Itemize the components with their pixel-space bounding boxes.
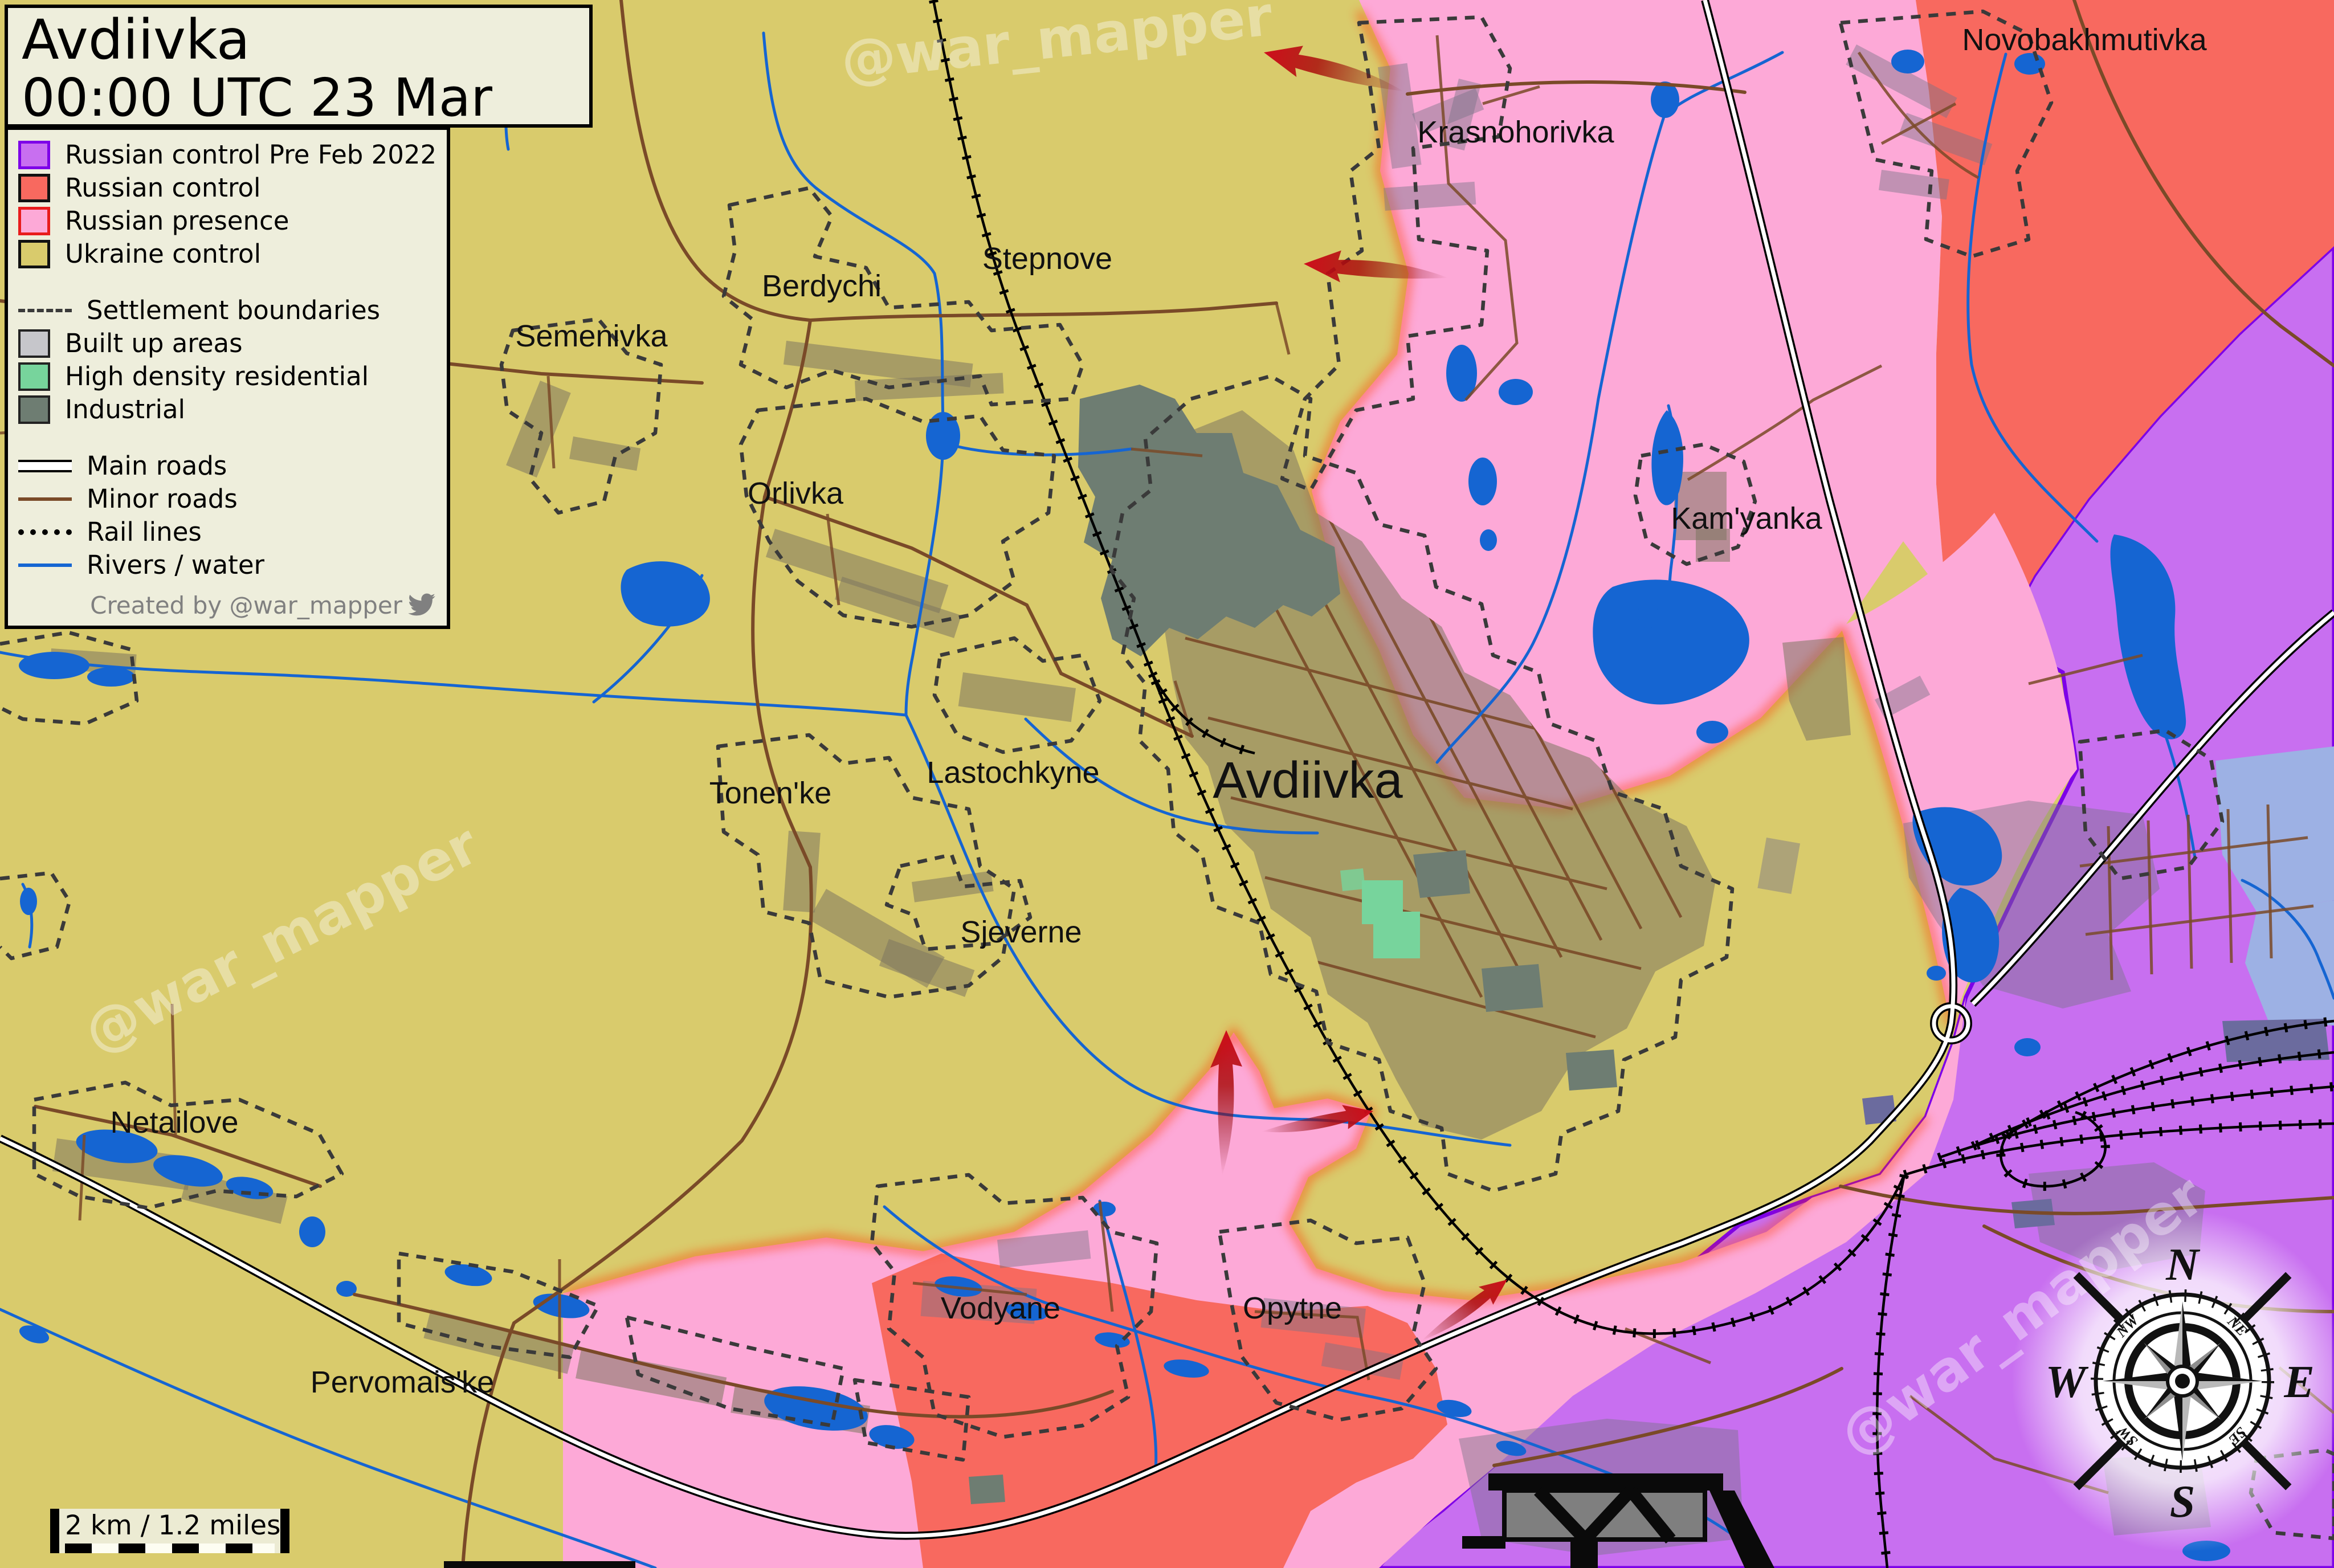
legend-label: Russian presence — [65, 206, 289, 236]
legend-row-prefeb: Russian control Pre Feb 2022 — [18, 138, 436, 171]
label-orlivka: Orlivka — [748, 476, 844, 511]
label-lastochkyne: Lastochkyne — [927, 756, 1099, 790]
label-krasnohorivka: Krasnohorivka — [1417, 115, 1614, 149]
map-title: Avdiivka — [22, 10, 576, 70]
label-opytne: Opytne — [1243, 1291, 1342, 1325]
label-netailove: Netailove — [110, 1105, 238, 1140]
swatch-russian-control-prefeb — [18, 141, 50, 169]
legend-label: Rail lines — [87, 517, 202, 547]
scale-ticks — [65, 1543, 275, 1553]
title-box: Avdiivka 00:00 UTC 23 Mar 23 — [5, 5, 593, 128]
legend-row-builtup: Built up areas — [18, 327, 436, 360]
scale-text: 2 km / 1.2 miles — [65, 1510, 275, 1541]
label-pervomaiske: Pervomais'ke — [311, 1365, 494, 1399]
swatch-russian-control — [18, 174, 50, 202]
legend-label: Russian control — [65, 173, 261, 203]
compass-e: E — [2283, 1357, 2314, 1407]
minor-road-sample — [18, 497, 72, 501]
swatch-russian-presence — [18, 207, 50, 235]
swatch-ukraine-control — [18, 240, 50, 268]
legend-label: Built up areas — [65, 328, 243, 358]
settlement-boundary-sample — [18, 309, 72, 312]
label-stepnove: Stepnove — [982, 242, 1112, 276]
legend-row-presence: Russian presence — [18, 205, 436, 237]
rail-line-sample — [18, 529, 72, 535]
label-vodyane: Vodyane — [941, 1291, 1060, 1325]
swatch-industrial — [18, 395, 50, 424]
compass-n: N — [2165, 1240, 2201, 1290]
compass-w: W — [2045, 1357, 2088, 1407]
scale-bar: 2 km / 1.2 miles — [50, 1509, 289, 1553]
credit-line: Created by @war_mapper — [18, 591, 436, 619]
legend: Russian control Pre Feb 2022 Russian con… — [5, 126, 450, 629]
legend-label: Minor roads — [87, 484, 238, 514]
main-road-sample — [18, 460, 72, 472]
legend-label: Settlement boundaries — [87, 295, 380, 325]
label-kamyanka: Kam'yanka — [1671, 501, 1822, 536]
legend-label: Ukraine control — [65, 239, 261, 269]
swatch-high-density — [18, 362, 50, 391]
legend-row-main-roads: Main roads — [18, 450, 436, 482]
legend-row-ukraine: Ukraine control — [18, 238, 436, 270]
swatch-built-up — [18, 329, 50, 358]
legend-label: High density residential — [65, 361, 369, 391]
legend-row-control: Russian control — [18, 171, 436, 204]
twitter-icon — [407, 593, 436, 619]
label-sjeverne: Sjeverne — [960, 915, 1082, 949]
river-sample — [18, 563, 72, 567]
legend-row-residential: High density residential — [18, 360, 436, 393]
map-canvas: @war_mapper @war_mapper @war_mapper N — [0, 0, 2334, 1568]
runway-strip-south — [444, 1561, 635, 1568]
legend-label: Russian control Pre Feb 2022 — [65, 140, 436, 170]
legend-label: Rivers / water — [87, 550, 264, 580]
legend-label: Main roads — [87, 451, 227, 481]
label-berdychi: Berdychi — [762, 269, 882, 303]
label-novobakhmutivka: Novobakhmutivka — [1962, 23, 2207, 57]
label-tonenke: Tonen'ke — [709, 776, 831, 810]
legend-row-rivers: Rivers / water — [18, 549, 436, 581]
compass-s: S — [2170, 1477, 2196, 1527]
legend-row-boundaries: Settlement boundaries — [18, 294, 436, 326]
legend-label: Industrial — [65, 394, 185, 424]
label-semenivka: Semenivka — [515, 319, 668, 353]
credit-text: Created by @war_mapper — [90, 591, 402, 619]
legend-row-minor-roads: Minor roads — [18, 483, 436, 515]
legend-row-industrial: Industrial — [18, 393, 436, 426]
label-avdiivka: Avdiivka — [1213, 752, 1403, 809]
legend-row-rail: Rail lines — [18, 516, 436, 548]
